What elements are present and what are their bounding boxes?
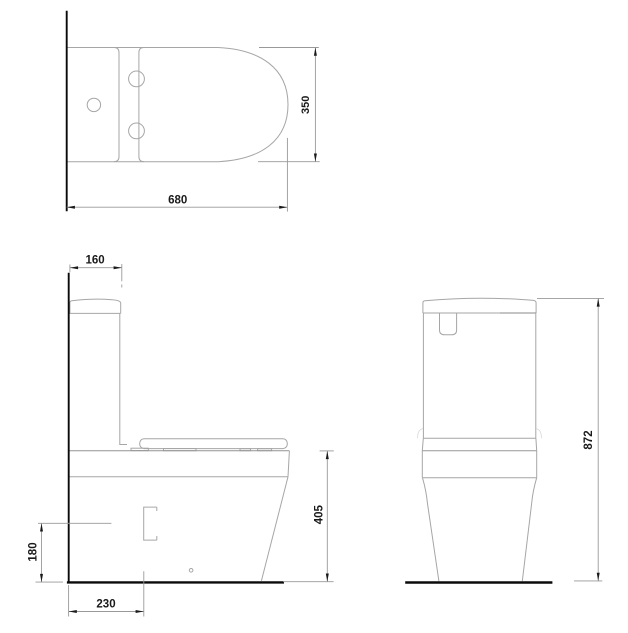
svg-text:160: 160 — [86, 255, 105, 267]
svg-text:350: 350 — [300, 96, 312, 114]
svg-text:872: 872 — [583, 430, 595, 449]
svg-text:405: 405 — [314, 505, 326, 525]
svg-text:230: 230 — [96, 598, 115, 610]
svg-text:180: 180 — [28, 542, 40, 561]
svg-text:680: 680 — [168, 195, 187, 207]
